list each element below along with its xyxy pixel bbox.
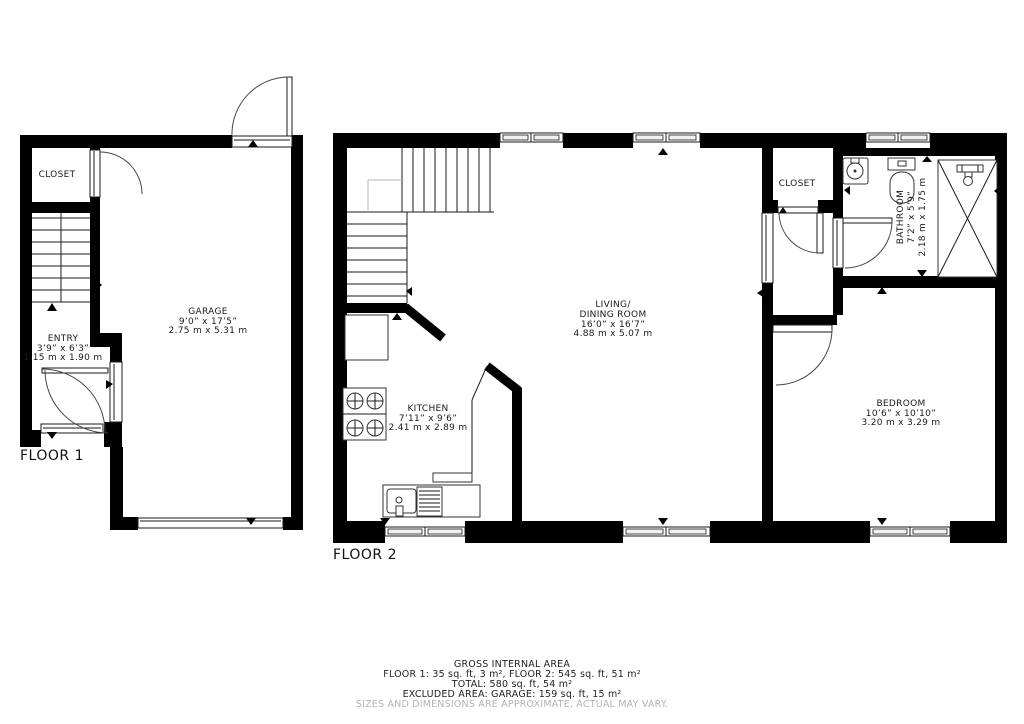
- garage-label: GARAGE: [188, 307, 227, 317]
- living-label-2: DINING ROOM: [579, 310, 646, 320]
- bathroom-sink-icon: [843, 158, 868, 184]
- floor2-label: FLOOR 2: [333, 547, 397, 563]
- bathroom-bottom-marker: [917, 270, 927, 277]
- kitchen-boundary: [472, 366, 487, 473]
- stairs-up-arrow: [47, 303, 57, 311]
- entry-dim-m: 1.15 m x 1.90 m: [24, 353, 103, 363]
- floor1-label: FLOOR 1: [20, 448, 84, 464]
- kitchen-label: KITCHEN: [407, 404, 448, 414]
- bedroom-dim-m: 3.20 m x 3.29 m: [862, 418, 941, 428]
- bedroom-label: BEDROOM: [876, 399, 925, 409]
- living-label-1: LIVING/: [595, 300, 631, 310]
- floor2-plan: KITCHEN 7’11” x 9’6” 2.41 m x 2.89 m LIV…: [333, 133, 1007, 563]
- footer: GROSS INTERNAL AREA FLOOR 1: 35 sq. ft, …: [356, 659, 668, 710]
- kitchen-sink-icon: [380, 473, 480, 525]
- floor2-closet-door: [778, 207, 823, 253]
- stove-icon: [343, 388, 386, 440]
- living-dim-m: 4.88 m x 5.07 m: [574, 329, 653, 339]
- bathroom-dim-m: 2.18 m x 1.75 m: [918, 178, 928, 257]
- window-living-top-left: [500, 133, 563, 148]
- floor1-walls: [20, 135, 303, 530]
- floor1-stairs: [32, 213, 90, 311]
- kitchen-dim-m: 2.41 m x 2.89 m: [389, 423, 468, 433]
- footer-disclaimer: SIZES AND DIMENSIONS ARE APPROXIMATE, AC…: [356, 699, 668, 710]
- window-bedroom-bottom: [870, 518, 950, 536]
- window-kitchen-bottom: [385, 527, 465, 536]
- stairs-up-arrow-2: [392, 313, 402, 320]
- floor2-closet-label: CLOSET: [779, 179, 816, 189]
- shower-icon: [938, 160, 997, 277]
- bathroom-dim-ft: 7’2” x 5’9”: [907, 191, 917, 243]
- window-living-bottom: [623, 518, 710, 536]
- floorplan-drawing: CLOSET ENTRY 3’9” x 6’3” 1.15 m x 1.90 m…: [0, 0, 1024, 724]
- garage-dim-m: 2.75 m x 5.31 m: [169, 326, 248, 336]
- bedroom-door: [773, 287, 887, 385]
- floor1-closet-label: CLOSET: [39, 170, 76, 180]
- entry-label: ENTRY: [48, 334, 79, 344]
- floorplan-page: CLOSET ENTRY 3’9” x 6’3” 1.15 m x 1.90 m…: [0, 0, 1024, 724]
- floor1-plan: CLOSET ENTRY 3’9” x 6’3” 1.15 m x 1.90 m…: [20, 77, 303, 530]
- floor2-stairs: [347, 148, 494, 320]
- window-living-top-right: [633, 133, 700, 155]
- bathroom-label: BATHROOM: [896, 190, 906, 244]
- garage-entry-door: [232, 77, 292, 147]
- garage-door: [138, 518, 283, 528]
- floor1-closet-door: [90, 150, 142, 197]
- fridge-icon: [345, 315, 388, 360]
